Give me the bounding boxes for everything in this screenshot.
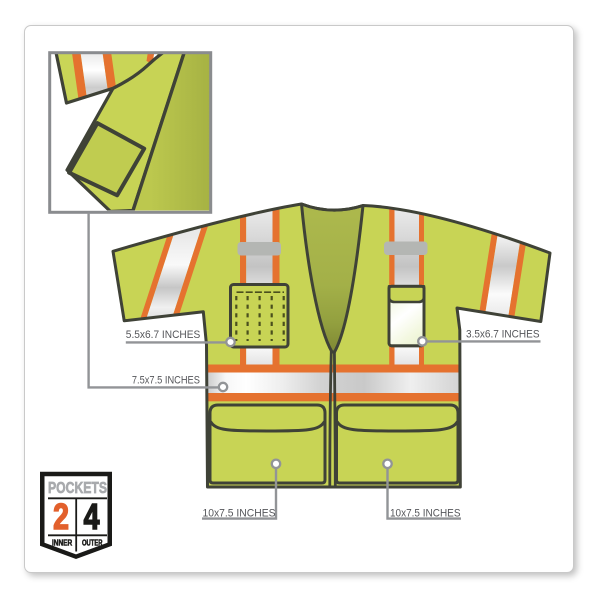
svg-text:3.5x6.7 INCHES: 3.5x6.7 INCHES bbox=[466, 328, 540, 340]
svg-text:2: 2 bbox=[53, 495, 69, 536]
svg-text:10x7.5 INCHES: 10x7.5 INCHES bbox=[390, 507, 461, 519]
svg-text:OUTER: OUTER bbox=[82, 538, 103, 547]
svg-text:4: 4 bbox=[84, 495, 101, 536]
svg-text:5.5x6.7 INCHES: 5.5x6.7 INCHES bbox=[126, 329, 201, 341]
svg-text:INNER: INNER bbox=[52, 538, 72, 547]
svg-text:7.5x7.5 INCHES: 7.5x7.5 INCHES bbox=[132, 375, 200, 387]
svg-text:10x7.5 INCHES: 10x7.5 INCHES bbox=[203, 507, 276, 519]
